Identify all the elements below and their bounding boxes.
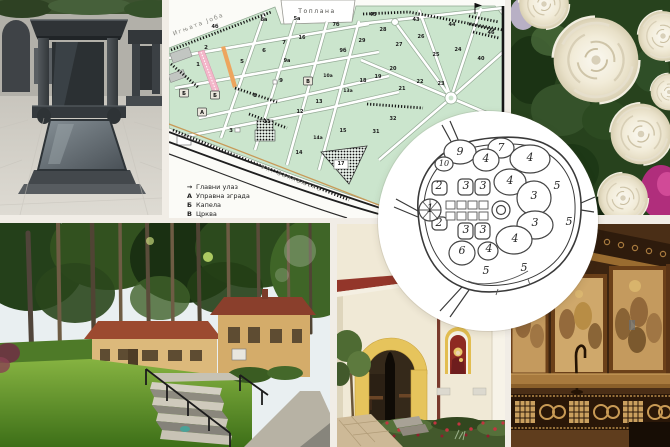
plot-label: 1 xyxy=(196,62,200,68)
legend-symbol: А xyxy=(183,192,196,200)
plot-label: 24 xyxy=(455,47,462,53)
map-marker-letter: А xyxy=(200,110,204,116)
inset-label: 3 xyxy=(480,223,487,236)
plot-label: 20 xyxy=(390,66,397,72)
plot-label: 46 xyxy=(488,30,495,36)
inset-label: 10 xyxy=(439,159,449,168)
inset-label: 6 xyxy=(459,244,466,257)
inset-label: 2 xyxy=(435,216,443,229)
legend-item: ВЦрква xyxy=(183,210,250,218)
inset-label: 3 xyxy=(463,223,470,236)
plot-label: 26 xyxy=(418,34,425,40)
heating-plant-label: Топлана xyxy=(297,8,336,15)
plot-label: 22 xyxy=(417,79,424,85)
sign-board xyxy=(232,349,246,360)
plot-label: 9 xyxy=(279,78,283,84)
legend-symbol: → xyxy=(183,183,196,191)
madonna-icon xyxy=(445,327,471,374)
plot-label: 18 xyxy=(360,78,367,84)
plot-label: 16 xyxy=(299,35,306,41)
lens-flare xyxy=(284,235,316,267)
plot-label: 15 xyxy=(340,128,347,134)
plot-label: 13 xyxy=(316,99,323,105)
inset-label: 7 xyxy=(498,141,505,154)
plot-label: 12 xyxy=(297,109,304,115)
plot-label: 21 xyxy=(399,86,406,92)
plot-label: 29 xyxy=(359,38,366,44)
map-marker-letter: Б xyxy=(213,93,217,99)
plot-label: 31 xyxy=(373,129,380,135)
old-plan-inset: 97104442335313523346455 xyxy=(378,111,598,331)
inset-label: 4 xyxy=(506,174,514,187)
plot-label: 7б xyxy=(333,21,340,28)
plaque xyxy=(437,388,450,395)
plot-label: 45 xyxy=(370,12,377,18)
plot-label: 11 xyxy=(264,119,271,125)
plot-label: 6 xyxy=(262,48,266,54)
inset-label: 4 xyxy=(482,152,490,165)
legend-item: БКапела xyxy=(183,201,250,209)
park-graphic xyxy=(0,223,330,447)
plot-label: 28 xyxy=(380,27,387,33)
park-alley-photo xyxy=(0,223,330,447)
inset-label: 4 xyxy=(511,232,519,245)
background-headstone xyxy=(2,20,30,92)
legend-symbol: Б xyxy=(183,201,196,209)
plot-label: 14а xyxy=(313,135,323,141)
inset-label: 5 xyxy=(521,261,528,274)
legend-item: →Главни улаз xyxy=(183,183,250,191)
legend-symbol: В xyxy=(183,210,196,218)
plot-label: 10а xyxy=(323,73,333,79)
inset-label: 4 xyxy=(485,242,493,255)
plaque xyxy=(473,388,486,395)
plot-label: 27 xyxy=(396,42,403,48)
inset-label: 5 xyxy=(483,264,490,277)
plot-label: 14 xyxy=(296,150,303,156)
legend-label: Црква xyxy=(196,210,217,218)
inset-label: 5 xyxy=(554,179,561,192)
plot-label: 8а xyxy=(261,17,268,23)
legend-label: Главни улаз xyxy=(196,183,238,191)
old-plan-graphic: 97104442335313523346455 xyxy=(378,111,598,331)
map-marker-letter: Б xyxy=(182,91,186,97)
plot-label: 40 xyxy=(478,56,485,62)
map-marker-letter: В xyxy=(306,79,310,85)
plot-label: 3 xyxy=(229,128,233,134)
plot-label: 17 xyxy=(338,161,345,167)
inset-label: 9 xyxy=(457,145,464,158)
plot-label: 5 xyxy=(240,59,244,65)
tombstones-photo xyxy=(0,0,162,215)
plot-label: 23 xyxy=(438,81,445,87)
tombstones-graphic xyxy=(0,0,162,215)
plot-label: 8 xyxy=(253,93,257,99)
legend-label: Управна зграда xyxy=(196,192,250,200)
inset-label: 5 xyxy=(566,215,573,228)
plot-label: 25 xyxy=(433,52,440,58)
plot-label: 32 xyxy=(390,116,397,122)
inset-label: 3 xyxy=(463,179,470,192)
plot-label: 7 xyxy=(282,40,286,46)
inset-label: 3 xyxy=(531,189,538,202)
inset-label: 1 xyxy=(427,202,434,215)
legend-label: Капела xyxy=(196,201,221,209)
inset-label: 4 xyxy=(526,151,534,164)
plot-label: 2 xyxy=(204,45,208,51)
plot-label: 5а xyxy=(294,16,301,22)
plot-label: 9а xyxy=(284,58,291,64)
plot-label: 9б xyxy=(340,47,347,54)
legend-item: АУправна зграда xyxy=(183,192,250,200)
inset-label: 2 xyxy=(435,179,443,192)
map-legend: →Главни улазАУправна зградаБКапелаВЦрква xyxy=(183,183,250,218)
inset-label: 3 xyxy=(480,179,487,192)
inset-label: 3 xyxy=(532,216,539,229)
plot-label: 19 xyxy=(375,74,382,80)
plot-label: 44 xyxy=(449,22,456,28)
stairs xyxy=(150,382,232,445)
plot-label: 4б xyxy=(212,23,219,30)
plot-label: 13а xyxy=(343,88,353,94)
plot-label: 43 xyxy=(413,17,420,23)
